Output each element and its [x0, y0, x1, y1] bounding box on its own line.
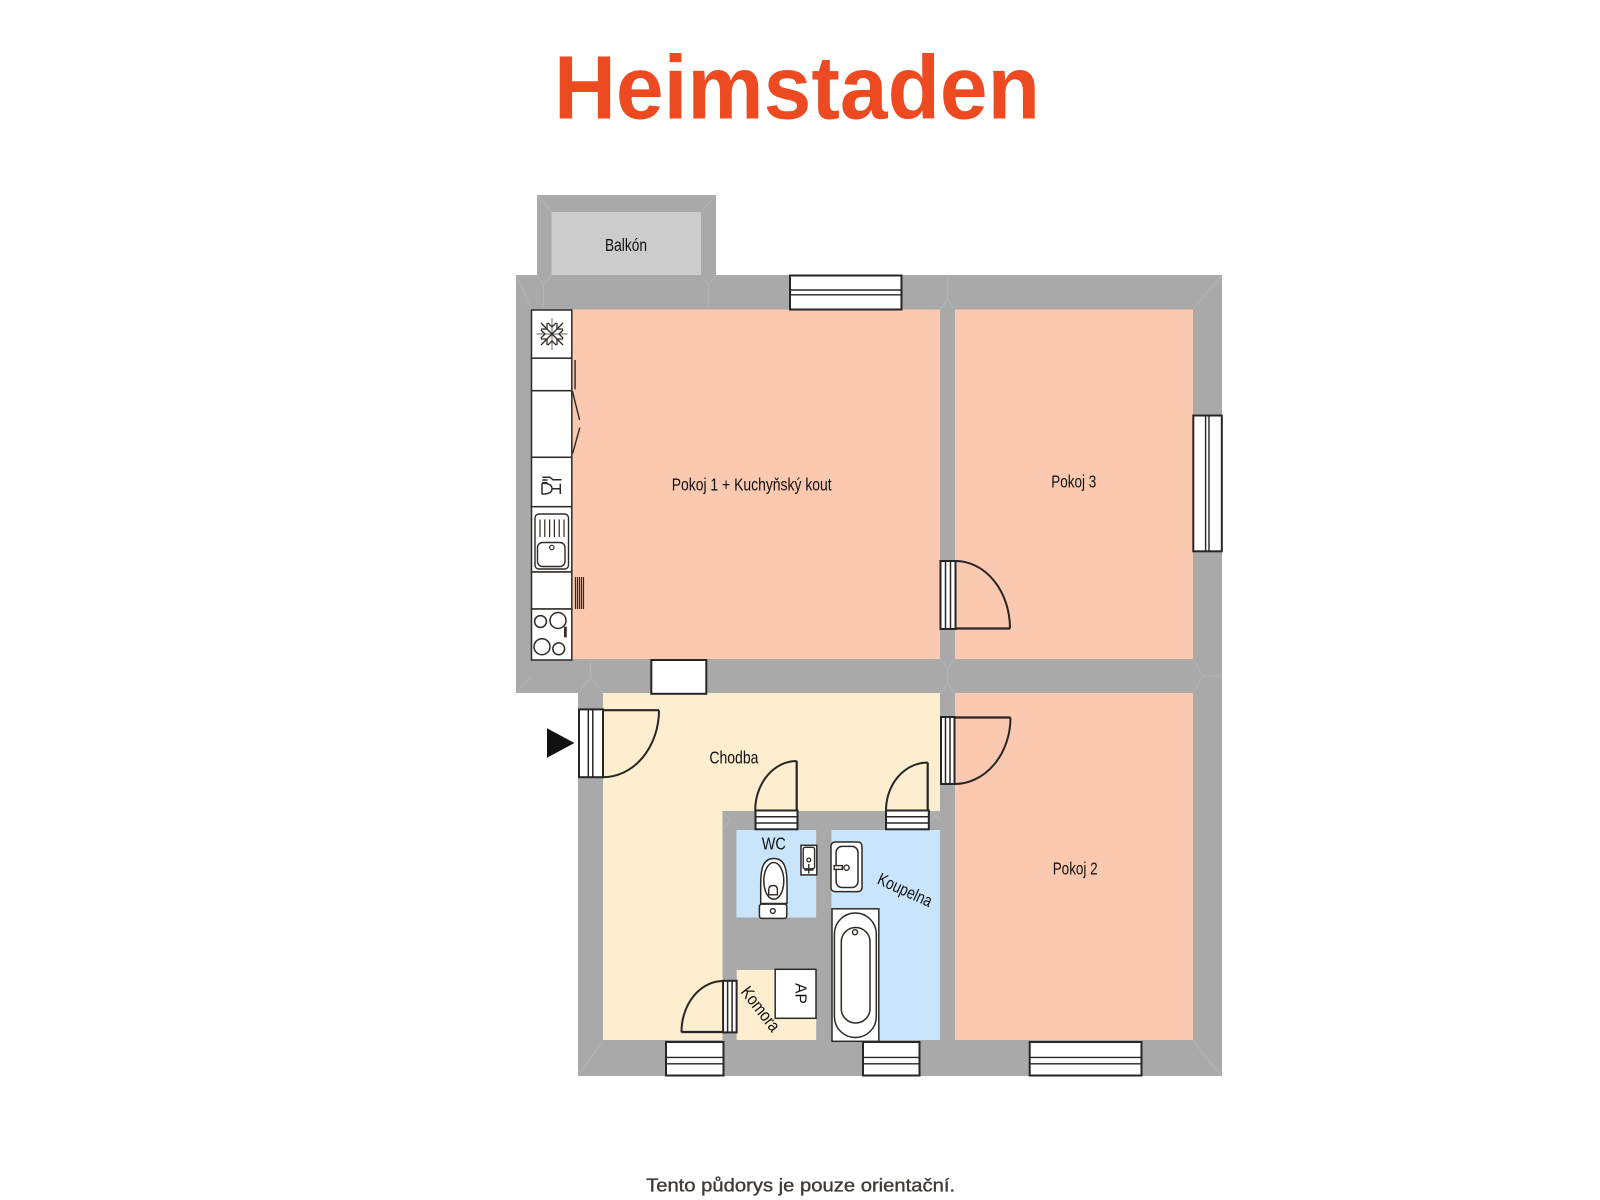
svg-text:Heimstaden: Heimstaden: [554, 38, 1040, 138]
svg-text:Pokoj 1 + Kuchyňský kout: Pokoj 1 + Kuchyňský kout: [672, 475, 832, 495]
svg-text:Balkón: Balkón: [605, 235, 647, 255]
svg-text:AP: AP: [792, 983, 809, 1004]
svg-text:WC: WC: [762, 834, 786, 854]
svg-text:Chodba: Chodba: [709, 748, 758, 768]
svg-text:Pokoj 3: Pokoj 3: [1051, 472, 1096, 492]
svg-text:Tento půdorys je pouze orienta: Tento půdorys je pouze orientační.: [646, 1175, 955, 1195]
svg-text:Pokoj 2: Pokoj 2: [1053, 859, 1098, 879]
